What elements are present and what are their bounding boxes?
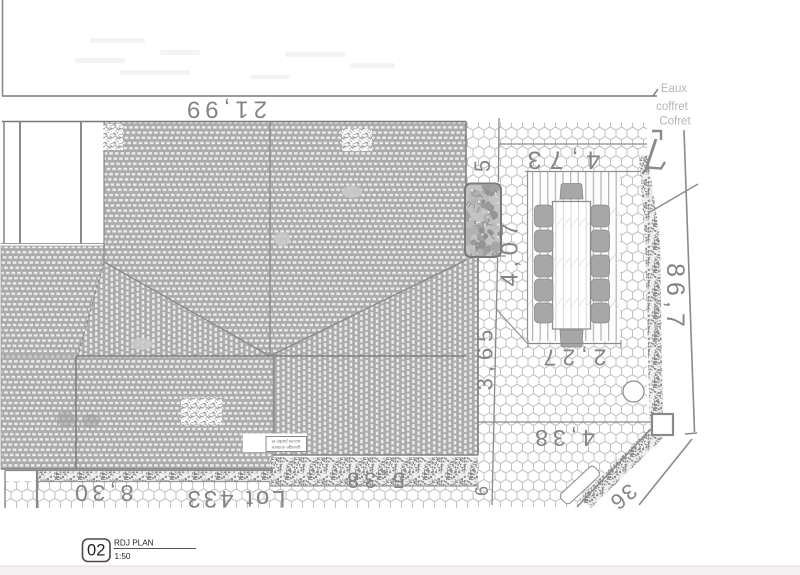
svg-text:2,27: 2,27 xyxy=(538,344,607,370)
svg-text:02: 02 xyxy=(87,541,105,559)
svg-text:4,38: 4,38 xyxy=(530,425,595,451)
svg-text:garage voiture: garage voiture xyxy=(271,445,300,450)
svg-text:Eaux: Eaux xyxy=(661,83,687,95)
svg-text:86,7: 86,7 xyxy=(661,263,689,332)
svg-text:1:50: 1:50 xyxy=(115,552,131,561)
svg-text:21,99: 21,99 xyxy=(182,96,267,123)
svg-text:Cofret: Cofret xyxy=(659,116,691,128)
svg-text:4,73: 4,73 xyxy=(520,145,601,173)
svg-text:coffret: coffret xyxy=(656,101,689,113)
svg-text:5: 5 xyxy=(470,160,495,172)
svg-text:5,38: 5,38 xyxy=(342,468,405,493)
svg-text:RDJ PLAN: RDJ PLAN xyxy=(114,539,154,548)
svg-text:Lot 433: Lot 433 xyxy=(184,485,285,512)
svg-text:3,65: 3,65 xyxy=(472,324,497,391)
svg-text:4,07: 4,07 xyxy=(496,218,523,287)
svg-text:8,30: 8,30 xyxy=(71,480,134,506)
svg-text:acces jardin et: acces jardin et xyxy=(271,439,301,444)
svg-text:6: 6 xyxy=(472,486,492,496)
